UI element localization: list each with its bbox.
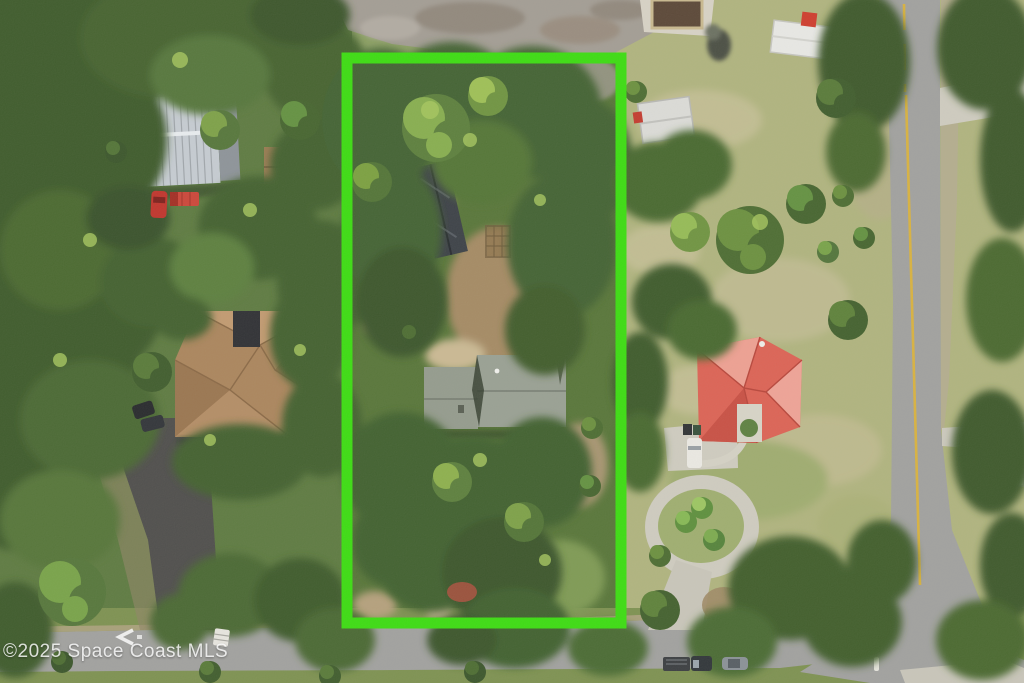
photo-grain <box>0 0 1024 683</box>
aerial-photo-canvas <box>0 0 1024 683</box>
watermark: ©2025 Space Coast MLS <box>3 641 228 664</box>
aerial-photo: ©2025 Space Coast MLS <box>0 0 1024 683</box>
